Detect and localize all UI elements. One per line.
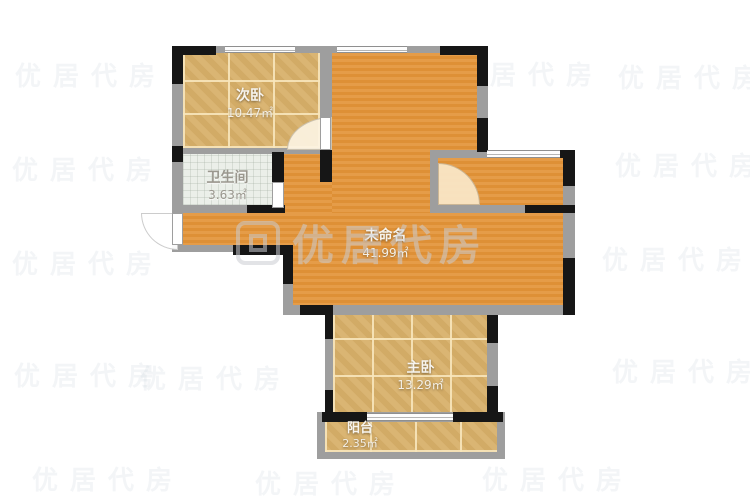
door-leaf-entry [172, 213, 183, 245]
wall-black-wing-bottom [525, 205, 575, 213]
room-area: 13.29㎡ [368, 378, 473, 393]
room-label-bathroom: 卫生间 3.63㎡ [185, 170, 270, 203]
room-label-bedroom1: 主卧 13.29㎡ [368, 360, 473, 393]
watermark-tile: 优居代房 [618, 58, 750, 95]
window-bedroom2-top [225, 46, 295, 53]
brand-logo-icon [236, 221, 280, 265]
wall-black-bath-right [272, 152, 284, 182]
watermark-tile: 优居代房 [255, 464, 407, 501]
window-wing-top [487, 150, 560, 158]
floorplan-page: { "floorplan": { "rooms": [ { "name": "次… [0, 0, 750, 500]
room-area: 3.63㎡ [185, 188, 270, 203]
wall-wing-left [430, 158, 438, 205]
watermark-tile: 优居代房 [12, 150, 164, 187]
wall-black-divider-end [320, 150, 332, 182]
wall-bedroom2-right [320, 53, 332, 117]
center-watermark: 优居代房 [236, 212, 488, 273]
door-leaf-bedroom2 [320, 117, 331, 150]
watermark-tile: 优居代房 [482, 460, 634, 497]
door-leaf-bathroom [272, 182, 284, 208]
watermark-tile: 优居代房 [32, 460, 184, 497]
wall-black-wing-right [563, 150, 575, 186]
wall-black-bedroom1-right-bot [487, 386, 498, 414]
watermark-tile: 优居代房 [602, 240, 750, 277]
watermark-tile: 优居代房 [140, 359, 292, 396]
room-name: 次卧 [200, 88, 300, 106]
room-label-bedroom2: 次卧 10.47㎡ [200, 88, 300, 121]
watermark-tile: 优居代房 [12, 244, 164, 281]
brand-logo-inner [249, 234, 267, 252]
wall-black-band-right [563, 258, 575, 315]
room-area: 2.35㎡ [328, 437, 392, 451]
watermark-tile: 优居代房 [15, 56, 167, 93]
wall-black-bedroom1-left-top [325, 313, 333, 339]
wall-black-topleft-v [172, 46, 183, 84]
wall-black-bedroom1-right-top [487, 315, 498, 343]
wall-balcony-bottom [317, 452, 505, 459]
wall-black-left-mid [172, 146, 183, 162]
watermark-tile: 优居代房 [612, 352, 750, 389]
wall-black-colright-top [477, 48, 488, 86]
room-area: 10.47㎡ [200, 106, 300, 121]
window-balcony-door [367, 413, 453, 421]
brand-watermark-text: 优居代房 [292, 212, 488, 273]
room-name: 阳台 [328, 421, 392, 437]
room-name: 卫生间 [185, 170, 270, 188]
wall-black-bedroom1-left-bot [325, 390, 333, 414]
wall-black-colright-bot [477, 118, 488, 152]
watermark-tile: 优居代房 [615, 146, 750, 183]
wall-black-bedroom1-bottom-r [453, 412, 503, 422]
room-label-balcony: 阳台 2.35㎡ [328, 421, 392, 451]
window-living-top [337, 46, 407, 53]
room-name: 主卧 [368, 360, 473, 378]
